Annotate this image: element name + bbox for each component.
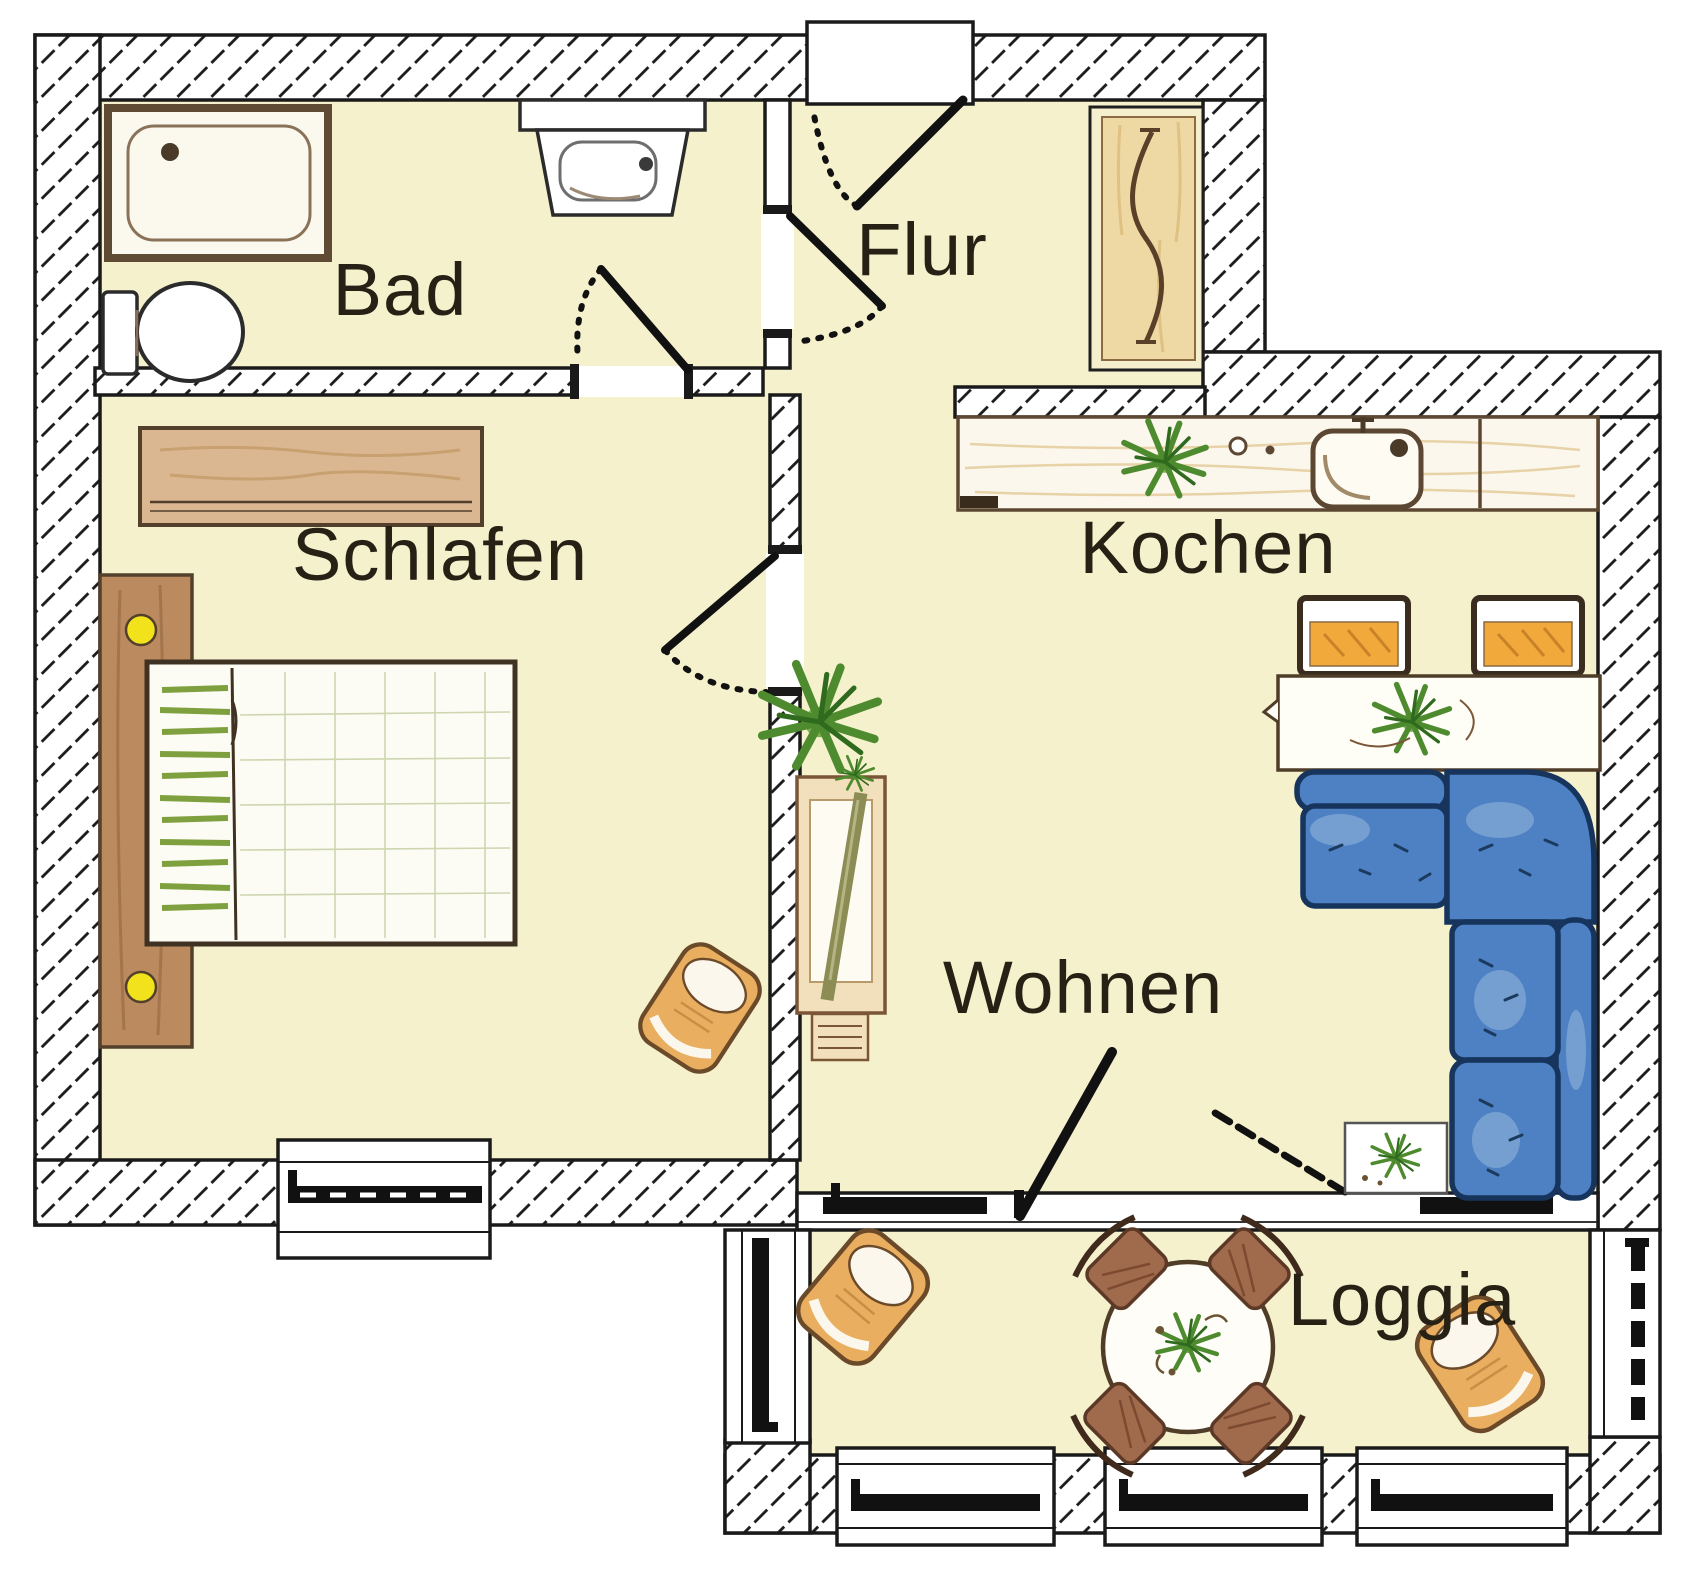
wall-loggia-left-corner xyxy=(725,1440,810,1533)
window-sash-left xyxy=(823,1197,987,1214)
room-label-kochen: Kochen xyxy=(1080,506,1337,589)
bed-knob-bottom xyxy=(126,972,156,1002)
sideboard-icon xyxy=(797,756,885,1060)
bed-knob-top xyxy=(126,615,156,645)
kitchen-table-icon xyxy=(1264,676,1600,770)
loggia-right-window xyxy=(1590,1230,1660,1437)
kitchen-sink-icon xyxy=(1313,417,1421,507)
room-label-schlafen: Schlafen xyxy=(292,513,588,596)
bathtub-icon xyxy=(108,108,328,258)
flur-wardrobe-icon xyxy=(1090,107,1203,370)
loggia-bottom-windows xyxy=(837,1448,1567,1545)
schlafen-wardrobe-icon xyxy=(140,428,482,525)
schlafen-window xyxy=(278,1140,490,1258)
loggia-window-2 xyxy=(1105,1448,1322,1545)
kitchen-counter-icon xyxy=(958,417,1598,510)
wall-flur-right xyxy=(1203,100,1265,352)
bad-schlafen-door-opening xyxy=(570,364,693,399)
toilet-icon xyxy=(103,283,243,381)
room-label-flur: Flur xyxy=(856,208,987,291)
room-label-wohnen: Wohnen xyxy=(943,946,1223,1029)
loggia-window-3 xyxy=(1357,1448,1567,1545)
wall-kochen-top xyxy=(1203,352,1660,417)
loggia-left-window xyxy=(725,1230,810,1443)
bad-door-opening xyxy=(761,205,794,338)
room-label-loggia: Loggia xyxy=(1288,1258,1516,1341)
wall-kochen-top-thin xyxy=(955,387,1205,417)
entrance-opening xyxy=(807,22,973,104)
room-label-bad: Bad xyxy=(333,248,468,331)
kitchen-chair-1-icon xyxy=(1300,598,1408,674)
wall-loggia-right-corner xyxy=(1590,1437,1660,1533)
floor-plan: Bad Flur Schlafen Kochen Wohnen Loggia xyxy=(0,0,1700,1580)
loggia-window-1 xyxy=(837,1448,1054,1545)
wall-right xyxy=(1598,417,1660,1230)
wall-top xyxy=(35,35,1265,100)
side-table-icon xyxy=(1345,1123,1447,1193)
wall-left xyxy=(35,35,100,1225)
kitchen-chair-2-icon xyxy=(1474,598,1582,674)
